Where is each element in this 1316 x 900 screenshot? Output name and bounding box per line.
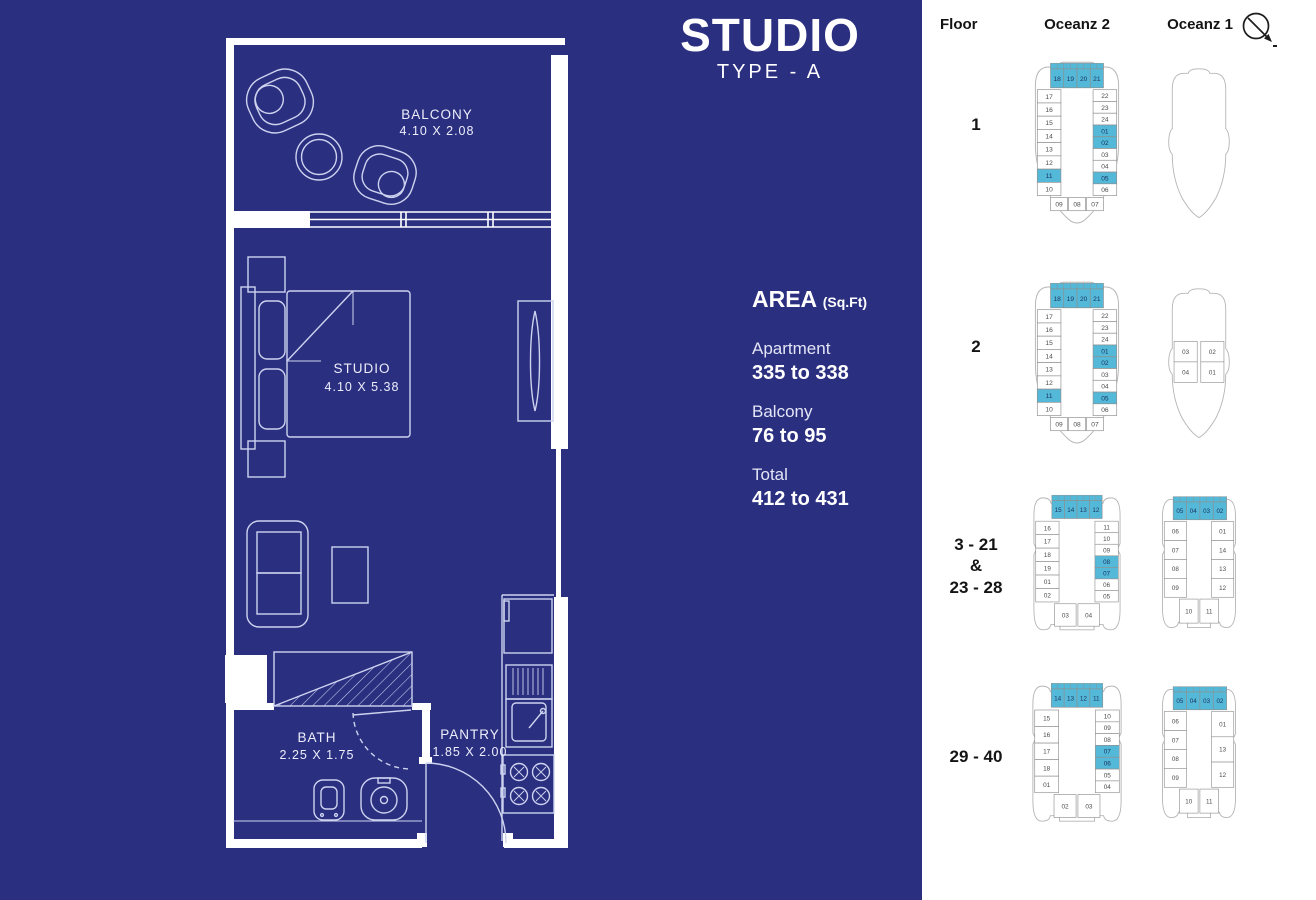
- cabin-number: 12: [1045, 380, 1053, 387]
- cabin-number: 08: [1073, 202, 1081, 209]
- wardrobe: [518, 301, 553, 421]
- cabin-number: 05: [1101, 395, 1109, 402]
- cabin-number: 19: [1067, 76, 1075, 83]
- cabin-number: 03: [1085, 803, 1093, 810]
- header-floor: Floor: [940, 16, 978, 33]
- floorplan-panel: BALCONY 4.10 X 2.08 STUDIO 4.10 X 5.38 B…: [0, 0, 922, 900]
- toilet: [314, 780, 344, 820]
- cabin-number: 13: [1080, 507, 1087, 514]
- cabin-number: 10: [1185, 798, 1192, 805]
- kitchen-counter: [501, 595, 554, 841]
- cabin-number: 17: [1044, 539, 1051, 546]
- cabin-number: 22: [1101, 313, 1109, 320]
- cabin-number: 05: [1176, 698, 1183, 705]
- cabin-number: 20: [1080, 296, 1088, 303]
- cabin-number: 15: [1043, 716, 1051, 723]
- cabin-number: 11: [1103, 524, 1110, 531]
- cabin-number: 14: [1045, 133, 1053, 140]
- cabin-number: 14: [1045, 353, 1053, 360]
- deck-plan-oceanz1-row1: [1150, 56, 1248, 234]
- cabin-number: 14: [1054, 695, 1062, 702]
- cabin-number: 02: [1216, 508, 1223, 515]
- cabin-number: 02: [1061, 803, 1069, 810]
- north-arrow-icon: [1238, 8, 1282, 52]
- cabin-number: 10: [1104, 713, 1112, 720]
- balcony-chair-2: [348, 140, 422, 210]
- cabin-number: 01: [1219, 528, 1226, 535]
- cabin-number: 07: [1104, 749, 1112, 756]
- cabin-number: 12: [1219, 772, 1226, 779]
- pantry-label: PANTRY: [440, 727, 500, 742]
- nightstand-bottom: [248, 441, 285, 477]
- cabin-number: 01: [1044, 579, 1051, 586]
- cabin-number: 17: [1045, 314, 1053, 321]
- cabin-number: 17: [1045, 94, 1053, 101]
- balcony-table: [296, 134, 342, 180]
- header-oceanz2: Oceanz 2: [1023, 16, 1131, 33]
- cabin-number: 17: [1043, 749, 1051, 756]
- cabin-number: 08: [1172, 756, 1179, 763]
- cabin-number: 02: [1216, 698, 1223, 705]
- area-heading: AREA (Sq.Ft): [752, 286, 867, 313]
- cabin-number: 13: [1067, 695, 1075, 702]
- cabin-number: 12: [1080, 695, 1088, 702]
- cabin-number: 18: [1053, 296, 1061, 303]
- cabin-number: 03: [1101, 152, 1109, 159]
- balcony-dims: 4.10 X 2.08: [400, 124, 475, 138]
- cabin-number: 03: [1182, 349, 1189, 356]
- cabin-number: 04: [1190, 508, 1197, 515]
- deck-plan-oceanz2-row4: 141312111516171801100908070605040203: [1025, 676, 1129, 846]
- cabin-number: 23: [1101, 105, 1109, 112]
- cabin-number: 11: [1093, 695, 1100, 702]
- entry-door: [426, 763, 506, 843]
- cabin-number: 19: [1067, 296, 1075, 303]
- cabin-number: 04: [1101, 164, 1109, 171]
- cabin-number: 15: [1055, 507, 1062, 514]
- cabin-number: 21: [1093, 296, 1101, 303]
- cabin-number: 04: [1182, 369, 1189, 376]
- deck-plan-oceanz2-row3: 15141312161718190102111009080706050304: [1025, 488, 1129, 654]
- area-heading-text: AREA: [752, 286, 816, 312]
- area-unit: (Sq.Ft): [823, 294, 867, 310]
- deck-plan-oceanz2-row2: 1819202117161514131211102223240102030405…: [1025, 276, 1129, 454]
- cabin-number: 24: [1101, 117, 1109, 124]
- cabin-number: 16: [1045, 107, 1053, 114]
- page-subtitle: TYPE - A: [652, 61, 888, 84]
- area-balcony-label: Balcony: [752, 402, 867, 422]
- cabin-number: 10: [1185, 608, 1192, 615]
- cabin-number: 09: [1172, 775, 1179, 782]
- cabin-number: 03: [1203, 698, 1210, 705]
- apartment-floorplan: BALCONY 4.10 X 2.08 STUDIO 4.10 X 5.38 B…: [225, 35, 570, 855]
- cabin-number: 06: [1172, 718, 1179, 725]
- cabin-number: 03: [1062, 612, 1069, 619]
- area-block: AREA (Sq.Ft) Apartment 335 to 338 Balcon…: [752, 286, 867, 528]
- deck-plan-oceanz1-row3: 0504030206070809011413121011: [1150, 488, 1248, 654]
- cabin-number: 06: [1101, 407, 1109, 414]
- cabin-number: 10: [1045, 406, 1053, 413]
- cabin-number: 18: [1043, 765, 1051, 772]
- area-total-label: Total: [752, 465, 867, 485]
- cabin-number: 03: [1101, 372, 1109, 379]
- cabin-number: 15: [1045, 340, 1053, 347]
- cabin-number: 09: [1172, 585, 1179, 592]
- cabin-number: 24: [1101, 337, 1109, 344]
- cabin-number: 20: [1080, 76, 1088, 83]
- unit-title-block: STUDIO TYPE - A: [652, 12, 888, 84]
- cabin-number: 13: [1219, 566, 1226, 573]
- cabin-number: 07: [1103, 570, 1110, 577]
- cabin-number: 08: [1104, 737, 1112, 744]
- page-title: STUDIO: [652, 12, 888, 58]
- basin: [361, 778, 407, 820]
- keyplan-panel: Floor Oceanz 2 Oceanz 1 1181920211716151…: [922, 0, 1316, 900]
- balcony-chair-1: [239, 61, 322, 141]
- headboard: [241, 287, 255, 449]
- cabin-number: 12: [1092, 507, 1099, 514]
- floor-label-row3: 3 - 21&23 - 28: [926, 534, 1026, 598]
- area-balcony-value: 76 to 95: [752, 425, 867, 448]
- cabin-number: 05: [1104, 772, 1112, 779]
- cabin-number: 02: [1044, 593, 1051, 600]
- cabin-number: 14: [1067, 507, 1074, 514]
- bath-door: [353, 710, 411, 769]
- cabin-number: 16: [1043, 732, 1051, 739]
- floor-label-row1: 1: [926, 114, 1026, 135]
- area-apartment-value: 335 to 338: [752, 362, 867, 385]
- cabin-number: 23: [1101, 325, 1109, 332]
- cabin-number: 07: [1091, 422, 1099, 429]
- cabin-number: 22: [1101, 93, 1109, 100]
- bath-label: BATH: [297, 730, 336, 745]
- walls: [225, 38, 568, 848]
- cabin-number: 08: [1172, 566, 1179, 573]
- cabin-number: 01: [1101, 128, 1109, 135]
- pantry-dims: 1.85 X 2.00: [433, 745, 508, 759]
- cabin-number: 08: [1073, 422, 1081, 429]
- pillow-1: [259, 301, 285, 359]
- cabin-number: 05: [1101, 175, 1109, 182]
- pillow-2: [259, 369, 285, 429]
- deck-plan-oceanz1-row4: 05040302060708090113121011: [1150, 676, 1248, 846]
- window-band: [310, 212, 551, 227]
- cabin-number: 02: [1209, 349, 1216, 356]
- cabin-number: 09: [1055, 422, 1063, 429]
- stove: [501, 755, 554, 813]
- cabin-number: 14: [1219, 547, 1226, 554]
- cabin-number: 09: [1055, 202, 1063, 209]
- cabin-number: 13: [1219, 747, 1226, 754]
- cabin-number: 04: [1101, 384, 1109, 391]
- cabin-number: 16: [1044, 525, 1051, 532]
- area-apartment-label: Apartment: [752, 339, 867, 359]
- cabin-number: 04: [1190, 698, 1197, 705]
- cabin-number: 02: [1101, 140, 1109, 147]
- cabin-number: 01: [1209, 369, 1216, 376]
- fridge: [504, 599, 552, 653]
- cabin-number: 13: [1045, 367, 1053, 374]
- side-table: [332, 547, 368, 603]
- cabin-number: 12: [1045, 160, 1053, 167]
- area-total-value: 412 to 431: [752, 488, 867, 511]
- sofa: [247, 521, 308, 627]
- cabin-number: 06: [1104, 761, 1112, 768]
- cabin-number: 01: [1043, 782, 1051, 789]
- cabin-number: 02: [1101, 360, 1109, 367]
- cabin-number: 09: [1104, 725, 1112, 732]
- cabin-number: 04: [1104, 784, 1112, 791]
- cabin-number: 01: [1101, 348, 1109, 355]
- cabin-number: 19: [1044, 566, 1051, 573]
- cabin-number: 11: [1206, 608, 1213, 615]
- cabin-number: 07: [1091, 202, 1099, 209]
- floor-label-row4: 29 - 40: [926, 746, 1026, 767]
- cabin-number: 05: [1176, 508, 1183, 515]
- area-item-balcony: Balcony 76 to 95: [752, 402, 867, 448]
- area-item-total: Total 412 to 431: [752, 465, 867, 511]
- cabin-number: 18: [1053, 76, 1061, 83]
- hatched-area: [274, 652, 412, 706]
- cabin-number: 07: [1172, 737, 1179, 744]
- cabin-number: 01: [1219, 721, 1226, 728]
- cabin-number: 15: [1045, 120, 1053, 127]
- cabin-number: 10: [1103, 536, 1110, 543]
- cabin-number: 11: [1046, 173, 1053, 180]
- floor-label-row2: 2: [926, 336, 1026, 357]
- deck-plan-oceanz2-row1: 1819202117161514131211102223240102030405…: [1025, 56, 1129, 234]
- cabin-number: 06: [1172, 528, 1179, 535]
- cabin-number: 06: [1103, 582, 1110, 589]
- bath-dims: 2.25 X 1.75: [280, 748, 355, 762]
- cabin-number: 13: [1045, 147, 1053, 154]
- cabin-number: 08: [1103, 559, 1110, 566]
- area-item-apartment: Apartment 335 to 338: [752, 339, 867, 385]
- cabin-number: 03: [1203, 508, 1210, 515]
- cabin-number: 12: [1219, 585, 1226, 592]
- cabin-number: 10: [1045, 186, 1053, 193]
- cabin-number: 06: [1101, 187, 1109, 194]
- cabin-number: 11: [1206, 798, 1213, 805]
- cabin-number: 21: [1093, 76, 1101, 83]
- balcony-label: BALCONY: [401, 107, 473, 122]
- cabin-number: 05: [1103, 594, 1110, 601]
- cabin-number: 09: [1103, 547, 1110, 554]
- studio-dims: 4.10 X 5.38: [325, 380, 400, 394]
- deck-plan-oceanz1-row2: 03040201: [1150, 276, 1248, 454]
- cabin-number: 04: [1085, 612, 1092, 619]
- cabin-number: 18: [1044, 552, 1051, 559]
- cabin-number: 07: [1172, 547, 1179, 554]
- cabin-number: 16: [1045, 327, 1053, 334]
- studio-label: STUDIO: [333, 361, 390, 376]
- cabin-number: 11: [1046, 393, 1053, 400]
